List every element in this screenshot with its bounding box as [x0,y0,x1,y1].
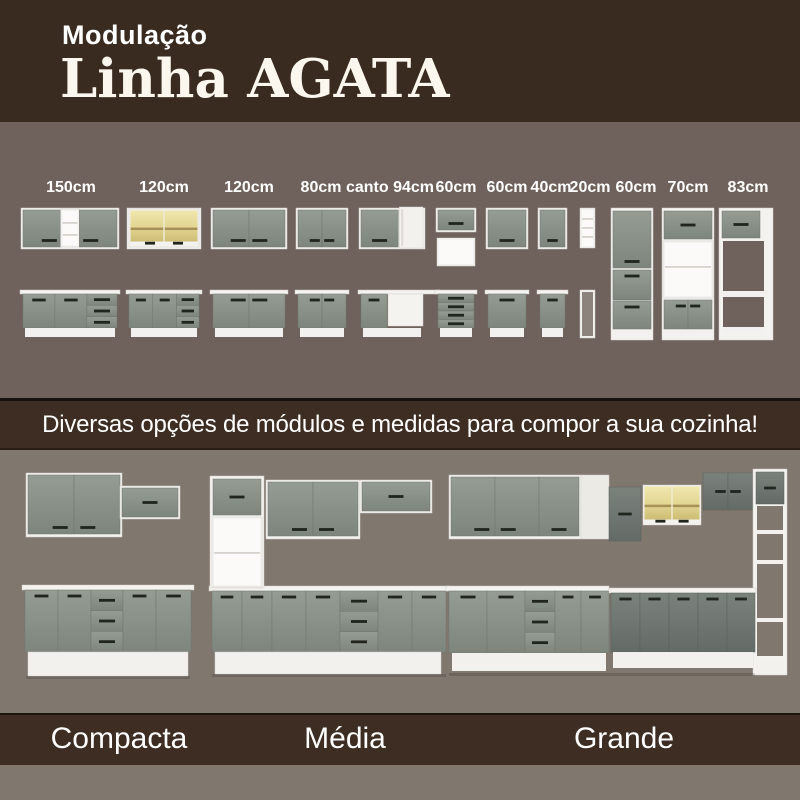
module-size-label: 120cm [224,179,274,197]
module-size-label: 150cm [46,179,96,197]
module-size-label: 40cm [531,179,572,197]
kitchen-name-label: Grande [574,722,674,756]
module-size-label: 83cm [728,179,769,197]
banner-text: Diversas opções de módulos e medidas par… [42,411,758,439]
page-title: Linha AGATA [60,48,450,110]
module-size-label: 20cm [570,179,611,197]
module-size-label: 80cm [301,179,342,197]
header-kicker: Modulação [62,20,208,51]
kitchen-name-label: Média [304,722,386,756]
banner: Diversas opções de módulos e medidas par… [0,398,800,450]
module-size-label: 120cm [139,179,189,197]
kitchen-name-label: Compacta [51,722,188,756]
module-size-label: 70cm [668,179,709,197]
module-size-label: canto 94cm [346,179,434,197]
module-size-label: 60cm [487,179,528,197]
modules-section-background [0,122,800,398]
module-size-label: 60cm [616,179,657,197]
module-size-label: 60cm [436,179,477,197]
catalog-page: Modulação Linha AGATA Diversas opções de… [0,0,800,800]
